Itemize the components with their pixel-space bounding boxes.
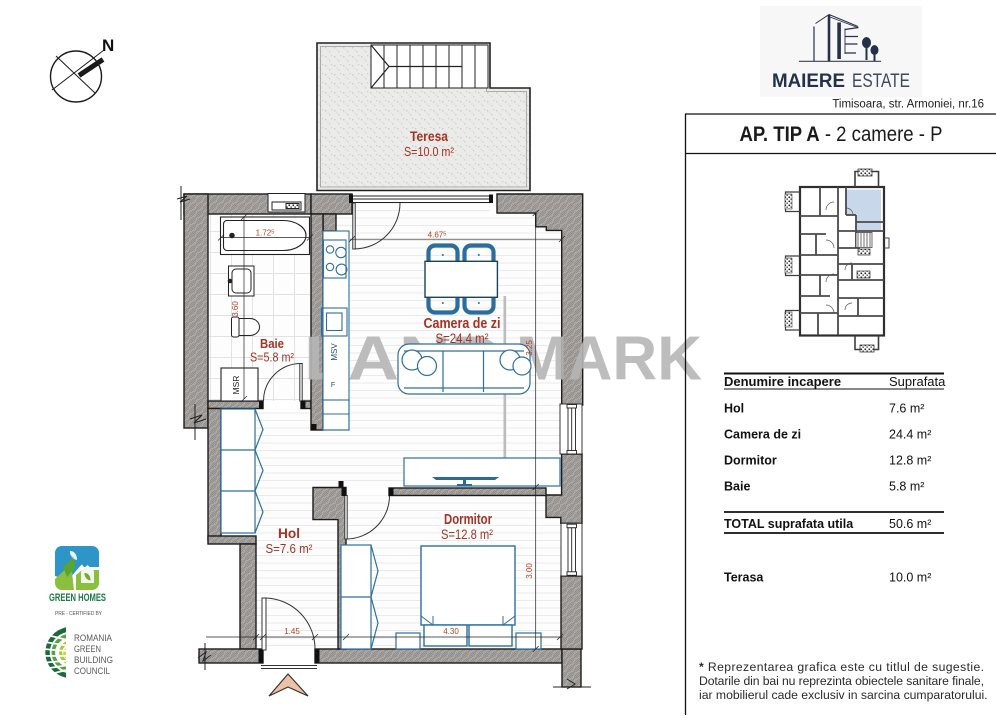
svg-text:S=10.0 m²: S=10.0 m² [404, 144, 455, 159]
svg-text:4.30: 4.30 [443, 627, 459, 636]
svg-text:TOTAL suprafata utila: TOTAL suprafata utila [724, 517, 854, 531]
svg-text:MSV: MSV [330, 343, 339, 361]
svg-text:Camera de zi: Camera de zi [424, 316, 501, 332]
svg-text:AP. TIP A - 2 camere - P: AP. TIP A - 2 camere - P [740, 123, 943, 146]
svg-text:24.4 m²: 24.4 m² [889, 428, 931, 442]
svg-text:50.6 m²: 50.6 m² [889, 517, 931, 531]
svg-text:COUNCIL: COUNCIL [74, 666, 110, 676]
svg-text:3.00: 3.00 [525, 563, 534, 579]
svg-text:Hol: Hol [278, 526, 300, 541]
svg-text:S=12.8 m²: S=12.8 m² [441, 527, 493, 542]
svg-text:Camera de zi: Camera de zi [724, 428, 801, 442]
svg-text:10.0 m²: 10.0 m² [889, 571, 931, 585]
svg-text:* Reprezentarea grafica este: * Reprezentarea grafica este cu titlul d… [699, 660, 984, 674]
svg-text:N: N [102, 36, 114, 55]
svg-text:Denumire incapere: Denumire incapere [724, 374, 841, 389]
svg-text:GREEN HOMES: GREEN HOMES [49, 592, 106, 604]
svg-text:GREEN: GREEN [74, 644, 101, 654]
svg-text:ROMANIA: ROMANIA [74, 633, 112, 643]
svg-text:BUILDING: BUILDING [74, 655, 113, 665]
svg-text:PRE - CERTIFIED BY: PRE - CERTIFIED BY [55, 611, 103, 617]
svg-text:Dormitor: Dormitor [724, 454, 777, 468]
svg-text:MAIERE: MAIERE [772, 71, 845, 92]
svg-text:F: F [331, 382, 335, 389]
svg-text:1.45: 1.45 [284, 627, 300, 636]
svg-text:Baie: Baie [724, 480, 750, 494]
svg-text:MARK: MARK [516, 325, 702, 394]
svg-text:Baie: Baie [260, 337, 284, 351]
svg-text:Dormitor: Dormitor [444, 512, 492, 528]
svg-text:5.8 m²: 5.8 m² [889, 480, 924, 494]
svg-text:S=7.6 m²: S=7.6 m² [266, 541, 314, 556]
svg-text:Suprafata: Suprafata [889, 374, 946, 389]
svg-text:Terasa: Terasa [724, 571, 764, 585]
svg-text:12.8 m²: 12.8 m² [889, 454, 931, 468]
svg-text:7.6 m²: 7.6 m² [889, 402, 924, 416]
svg-text:S=5.8 m²: S=5.8 m² [250, 351, 294, 365]
svg-text:S=24.4 m²: S=24.4 m² [436, 331, 489, 346]
svg-text:ESTATE: ESTATE [852, 71, 910, 92]
svg-text:3.60: 3.60 [231, 301, 240, 317]
svg-text:Timisoara, str. Armoniei, nr.1: Timisoara, str. Armoniei, nr.16 [832, 99, 984, 111]
svg-text:Teresa: Teresa [410, 129, 448, 144]
svg-text:Hol: Hol [724, 402, 744, 416]
svg-text:Dotarile din bai nu reprezinta: Dotarile din bai nu reprezinta obiectele… [699, 674, 984, 688]
svg-text:MSR: MSR [231, 376, 241, 395]
svg-text:3.25: 3.25 [525, 340, 534, 356]
svg-text:iar mobilierul cade exclusiv i: iar mobilierul cade exclusiv in sarcina … [699, 688, 988, 702]
